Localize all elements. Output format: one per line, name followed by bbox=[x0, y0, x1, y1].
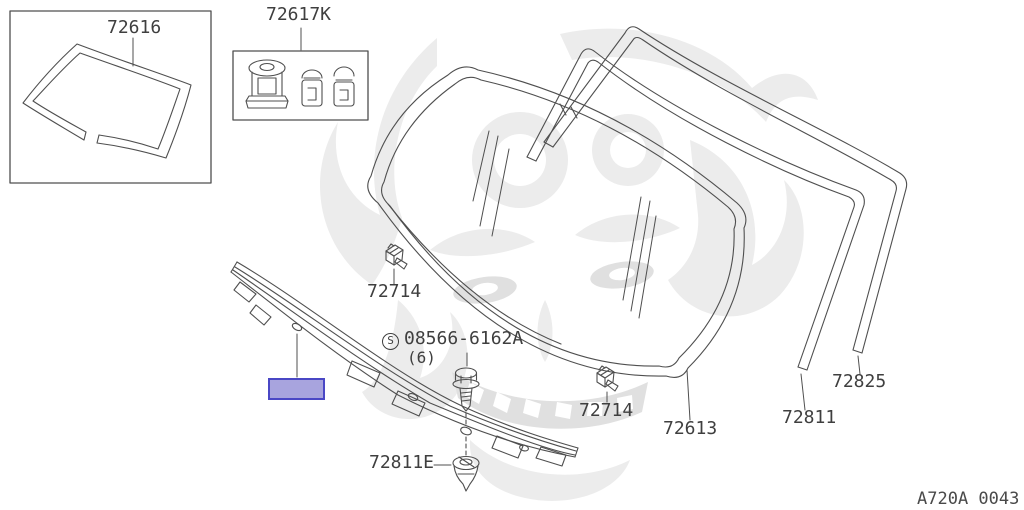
screw-prefix-icon: S bbox=[382, 333, 399, 350]
label-72811[interactable]: 72811 bbox=[782, 409, 836, 427]
label-72714-top[interactable]: 72714 bbox=[367, 283, 421, 301]
label-screw-qty: (6) bbox=[407, 350, 436, 366]
label-72613[interactable]: 72613 bbox=[663, 420, 717, 438]
diagram-line-art bbox=[0, 0, 1024, 510]
label-72617k[interactable]: 72617K bbox=[266, 6, 331, 24]
label-72825[interactable]: 72825 bbox=[832, 373, 886, 391]
label-screw-code[interactable]: 08566-6162A bbox=[404, 330, 523, 348]
drawing-reference-code: A720A 0043 bbox=[917, 491, 1019, 508]
label-72811e[interactable]: 72811E bbox=[369, 454, 434, 472]
label-72714-mid[interactable]: 72714 bbox=[579, 402, 633, 420]
parts-diagram-canvas: 72616 72617K 72714 S 08566-6162A (6) 728… bbox=[0, 0, 1024, 510]
label-72616[interactable]: 72616 bbox=[107, 19, 161, 37]
inset-box-72617k bbox=[233, 51, 368, 120]
selected-part-highlight[interactable] bbox=[268, 378, 325, 400]
